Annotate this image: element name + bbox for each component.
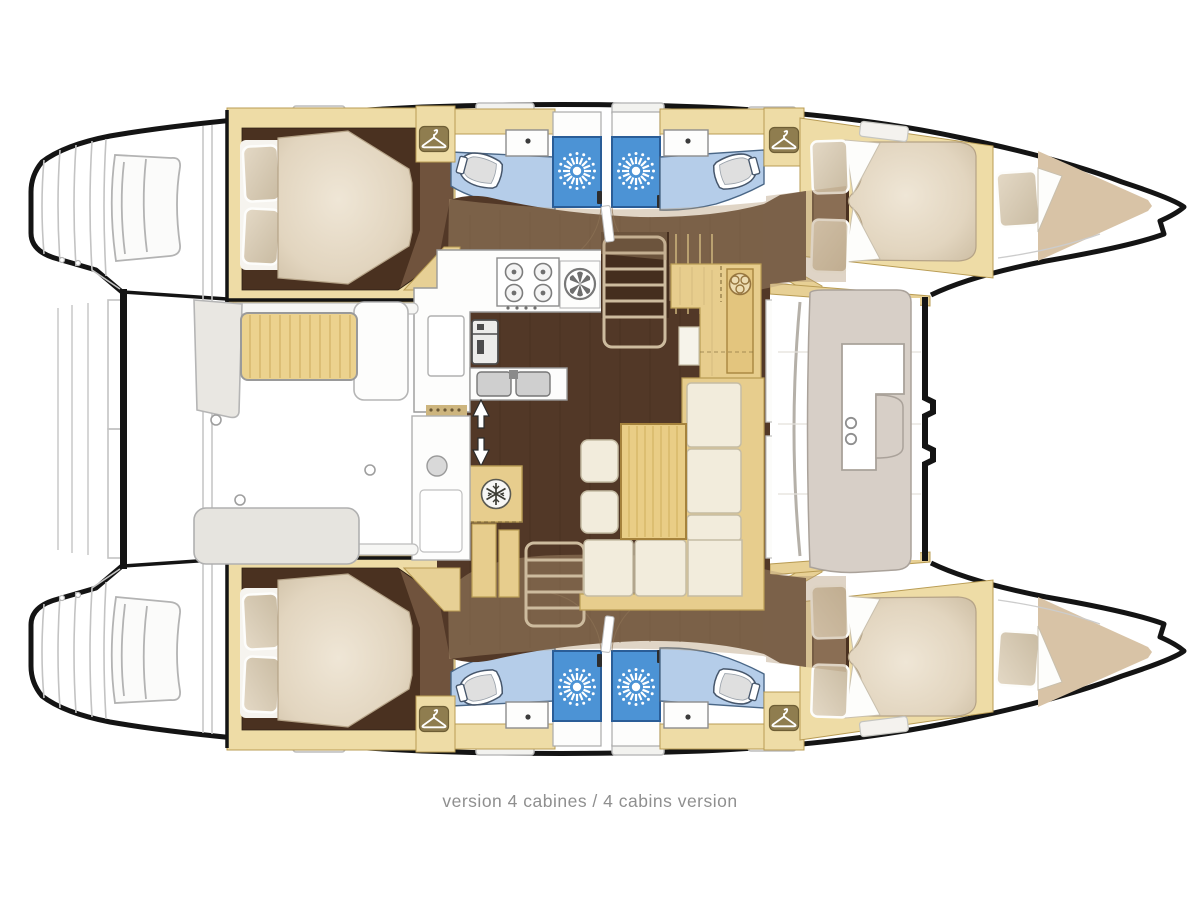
svg-text:version 4 cabines / 4 cabins v: version 4 cabines / 4 cabins version	[442, 791, 737, 811]
